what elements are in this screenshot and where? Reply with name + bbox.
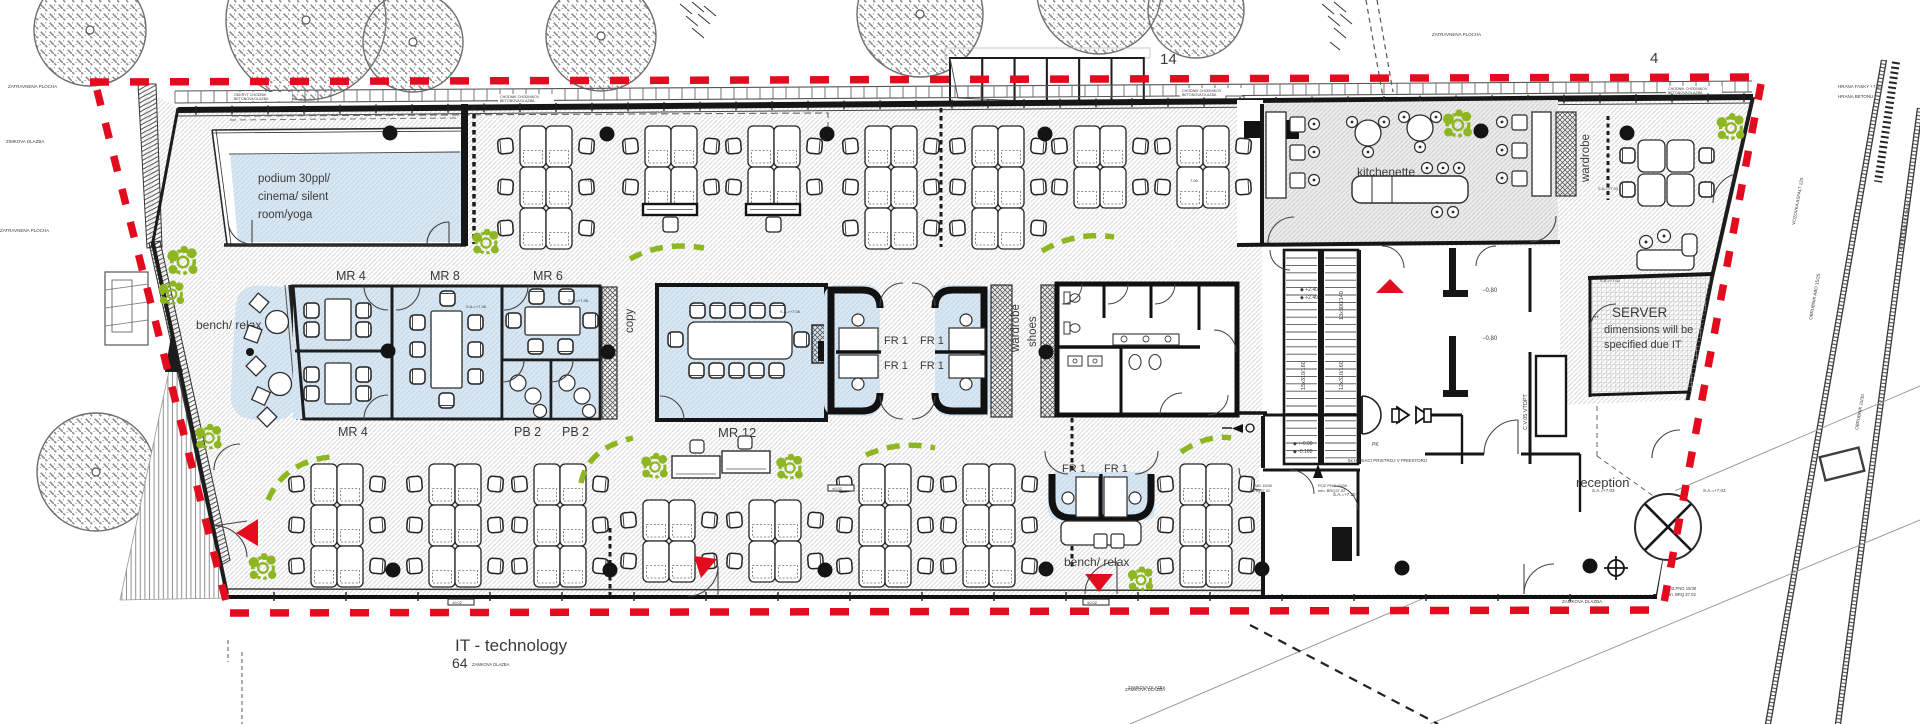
svg-text:cinema/ silent: cinema/ silent (258, 191, 329, 203)
svg-text:C V.05 VTDPT: C V.05 VTDPT (1523, 393, 1529, 430)
svg-text:BETONOVA DLAZBA: BETONOVA DLAZBA (234, 97, 269, 101)
svg-text:dimensions will be: dimensions will be (1604, 324, 1693, 336)
svg-text:FR 1: FR 1 (884, 360, 908, 372)
svg-text:7.06: 7.06 (1190, 178, 1199, 183)
svg-text:room/yoga: room/yoga (258, 209, 313, 221)
svg-text:ZAMKOVA DLAZBA: ZAMKOVA DLAZBA (1562, 599, 1602, 604)
svg-text:OBRUBNIK ABO 15/25: OBRUBNIK ABO 15/25 (1808, 273, 1821, 320)
svg-text:kitchenette: kitchenette (1357, 165, 1415, 179)
svg-text:64: 64 (452, 655, 468, 671)
svg-text:PB 2: PB 2 (562, 425, 589, 439)
svg-text:14: 14 (1160, 51, 1177, 68)
svg-text:S.A.=+7.20: S.A.=+7.20 (1333, 492, 1356, 497)
svg-text:ZAMKOVA DLAZBA: ZAMKOVA DLAZBA (1128, 685, 1166, 690)
svg-text:5x HASIACI PRISTROJ V PRIESTOR: 5x HASIACI PRISTROJ V PRIESTORU (1348, 458, 1427, 463)
svg-text:bench/ relax: bench/ relax (1064, 555, 1129, 569)
svg-text:ZAMKOVA DLAZBA: ZAMKOVA DLAZBA (472, 662, 510, 667)
svg-text:7.06: 7.06 (585, 178, 594, 183)
svg-text:podium 30ppl/: podium 30ppl/ (258, 173, 331, 185)
svg-text:wardrobe: wardrobe (1580, 134, 1592, 183)
svg-text:4: 4 (1650, 50, 1658, 67)
svg-text:BETONOVA DLAZBA: BETONOVA DLAZBA (1668, 91, 1703, 95)
svg-text:S.A.=+7.06: S.A.=+7.06 (466, 304, 487, 309)
svg-text:S.A.=+7.03: S.A.=+7.03 (1592, 488, 1615, 493)
svg-text:ZIMKOVA DLAZBA: ZIMKOVA DLAZBA (6, 139, 44, 144)
svg-text:MR 4: MR 4 (336, 269, 366, 283)
svg-text:ZATRAVNENA PLOCHA: ZATRAVNENA PLOCHA (1432, 32, 1481, 37)
svg-text:copy: copy (624, 308, 636, 333)
svg-text:S.A.=+7.03: S.A.=+7.03 (1598, 186, 1619, 191)
svg-text:min. BRQ 37.02: min. BRQ 37.02 (1666, 592, 1696, 597)
svg-text:MR 8: MR 8 (430, 269, 460, 283)
svg-text:S.A.=+7.06: S.A.=+7.06 (568, 298, 589, 303)
svg-text:FR 1: FR 1 (920, 335, 944, 347)
svg-text:15x310/160: 15x310/160 (1301, 361, 1307, 390)
svg-text:12x310/160: 12x310/160 (1339, 361, 1345, 390)
svg-text:FR 1: FR 1 (1062, 463, 1086, 475)
svg-text:S.A.=+7.03: S.A.=+7.03 (1703, 488, 1726, 493)
svg-text:BETONOVA DLAZBA: BETONOVA DLAZBA (500, 99, 535, 103)
svg-text:wardrobe: wardrobe (1010, 304, 1022, 353)
svg-text:◆ +-0.00: ◆ +-0.00 (1293, 441, 1313, 447)
svg-text:PK: PK (1372, 442, 1379, 448)
svg-text:BETONOVA DLAZBA: BETONOVA DLAZBA (1182, 93, 1217, 97)
svg-text:**: ** (1594, 316, 1599, 322)
svg-text:ZATRAVNENA PLOCHA: ZATRAVNENA PLOCHA (0, 228, 49, 233)
svg-text:shoes: shoes (1027, 316, 1039, 347)
svg-text:FR 1: FR 1 (1104, 463, 1128, 475)
svg-text:−0.80: −0.80 (1482, 288, 1498, 294)
svg-text:−0.80: −0.80 (1482, 336, 1498, 342)
svg-text:◆ +2.40: ◆ +2.40 (1300, 287, 1318, 293)
svg-text:HRANA FASKY +7.20: HRANA FASKY +7.20 (1838, 84, 1882, 89)
svg-text:specified due IT: specified due IT (1604, 339, 1682, 351)
svg-text:FR 1: FR 1 (920, 360, 944, 372)
svg-text:MR 4: MR 4 (338, 425, 368, 439)
svg-text:±0.02: ±0.02 (832, 486, 843, 491)
svg-text:◆ +2.40: ◆ +2.40 (1300, 295, 1318, 301)
svg-text:S.A.=+7.06: S.A.=+7.06 (780, 309, 801, 314)
svg-text:MR 6: MR 6 (533, 269, 563, 283)
svg-text:HRANA BETONU: HRANA BETONU (1838, 94, 1873, 99)
svg-text:◆ -0.160: ◆ -0.160 (1293, 449, 1313, 455)
svg-text:±0.02: ±0.02 (452, 600, 463, 605)
svg-text:SERVER: SERVER (1612, 305, 1668, 320)
svg-text:VOZOVKA ASFALT 123: VOZOVKA ASFALT 123 (1791, 177, 1804, 225)
svg-text:OBRUBNIK 15/30: OBRUBNIK 15/30 (1854, 393, 1865, 430)
svg-text:IT - technology: IT - technology (455, 636, 568, 655)
svg-text:PB 2: PB 2 (514, 425, 541, 439)
svg-text:ZATRAVNENA PLOCHA: ZATRAVNENA PLOCHA (8, 84, 57, 89)
svg-text:±0.02: ±0.02 (1087, 600, 1098, 605)
svg-text:13x300/140: 13x300/140 (1339, 291, 1345, 320)
svg-text:FR 1: FR 1 (884, 335, 908, 347)
